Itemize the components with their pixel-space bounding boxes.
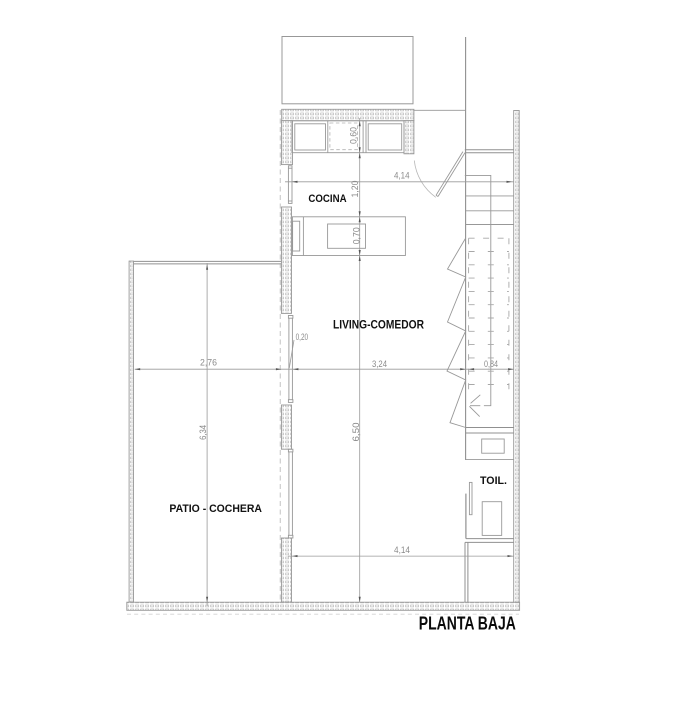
svg-text:TOIL.: TOIL. [480, 475, 507, 487]
svg-text:6,34: 6,34 [198, 425, 209, 440]
svg-text:6,50: 6,50 [351, 423, 362, 442]
svg-text:2,76: 2,76 [200, 358, 217, 369]
svg-text:4,14: 4,14 [394, 170, 410, 181]
svg-text:4,14: 4,14 [394, 545, 410, 556]
svg-text:0,20: 0,20 [296, 332, 309, 343]
svg-text:0,84: 0,84 [484, 359, 498, 370]
svg-text:PLANTA BAJA: PLANTA BAJA [419, 614, 516, 634]
svg-text:3,24: 3,24 [372, 359, 387, 370]
svg-text:LIVING-COMEDOR: LIVING-COMEDOR [333, 317, 424, 331]
svg-text:PATIO - COCHERA: PATIO - COCHERA [169, 503, 262, 515]
svg-text:0,70: 0,70 [351, 227, 362, 244]
svg-text:1,20: 1,20 [350, 181, 361, 198]
svg-text:COCINA: COCINA [308, 193, 346, 205]
svg-text:0,60: 0,60 [348, 127, 359, 144]
